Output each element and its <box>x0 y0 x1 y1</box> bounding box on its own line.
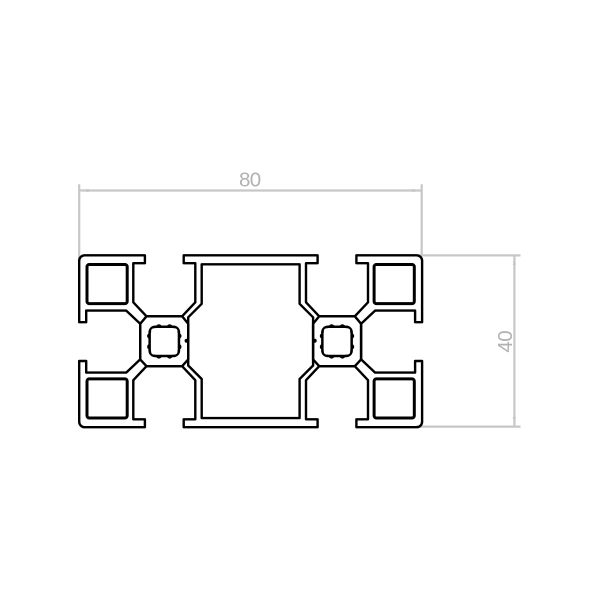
svg-text:40: 40 <box>494 331 517 353</box>
svg-text:80: 80 <box>239 168 261 191</box>
